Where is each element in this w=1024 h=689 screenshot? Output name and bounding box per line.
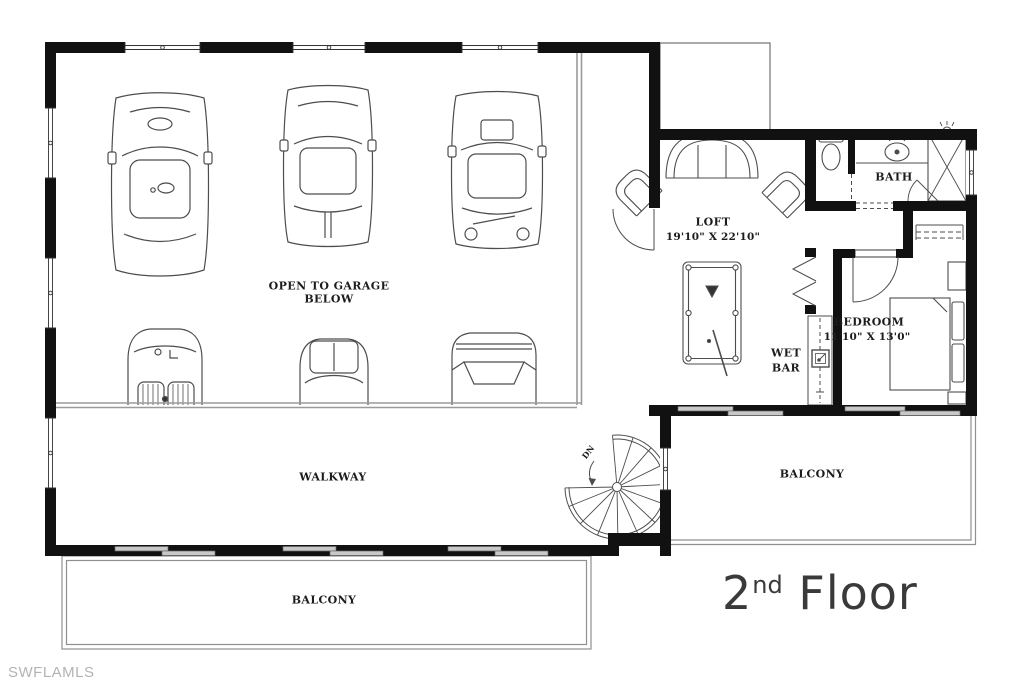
loft-left-wall bbox=[649, 42, 660, 208]
window-top-1 bbox=[125, 42, 200, 53]
open-to-garage-label-line2: BELOW bbox=[304, 293, 353, 306]
garage-cars bbox=[108, 86, 546, 417]
toilet-partition bbox=[848, 129, 855, 174]
stair-bottom-wall bbox=[608, 533, 671, 546]
wet-bar-counter bbox=[808, 316, 832, 405]
closet-bifold-doors bbox=[793, 257, 816, 306]
window-stair-nook bbox=[660, 448, 671, 490]
closet-jamb-bottom bbox=[805, 305, 816, 314]
window-left-2 bbox=[45, 258, 56, 328]
pillow bbox=[952, 344, 964, 382]
bath-bottom-wall-b bbox=[893, 201, 977, 211]
car-top-view-6 bbox=[452, 333, 536, 406]
balcony-south-label: BALCONY bbox=[292, 594, 357, 607]
floor-title-word: Floor bbox=[798, 566, 917, 620]
car-top-view-3 bbox=[448, 92, 546, 249]
window-left-3 bbox=[45, 418, 56, 488]
wet-bar-label-line2: BAR bbox=[772, 362, 800, 375]
window-left-1 bbox=[45, 108, 56, 178]
floor-plan-page: OPEN TO GARAGE BELOW LOFT 19'10" X 22'10… bbox=[0, 0, 1024, 689]
floor-title-number: 2 bbox=[722, 566, 752, 620]
closet-rod-shelf bbox=[916, 225, 963, 240]
car-top-view-2 bbox=[280, 86, 376, 247]
sliding-doors bbox=[115, 407, 960, 556]
dresser bbox=[855, 250, 900, 257]
roof-below-area bbox=[660, 43, 770, 133]
stair-down-arrow bbox=[589, 461, 597, 486]
bedroom-label: BEDROOM bbox=[834, 316, 905, 329]
nightstand-bottom bbox=[948, 392, 966, 404]
pillow bbox=[952, 302, 964, 340]
window-top-3 bbox=[462, 42, 538, 53]
bedroom-top-wall-b bbox=[896, 249, 913, 258]
bath-left-wall bbox=[805, 129, 816, 210]
watermark: SWFLAMLS bbox=[8, 664, 95, 681]
wet-bar-label-line1: WET bbox=[771, 347, 801, 360]
open-to-garage-label-line1: OPEN TO GARAGE bbox=[269, 280, 390, 293]
loft-furniture bbox=[611, 133, 813, 376]
floor-title-ordinal: nd bbox=[752, 571, 782, 599]
bedroom-dimensions: 11'10" X 13'0" bbox=[824, 331, 911, 343]
loft-dimensions: 19'10" X 22'10" bbox=[666, 231, 760, 243]
bath-label: BATH bbox=[875, 171, 912, 184]
floor-title: 2nd Floor bbox=[722, 566, 918, 620]
pool-table bbox=[683, 262, 741, 376]
bed bbox=[890, 298, 964, 390]
window-top-2 bbox=[293, 42, 365, 53]
balcony-east-label: BALCONY bbox=[780, 468, 845, 481]
spiral-staircase bbox=[565, 435, 669, 539]
bedroom-door bbox=[853, 257, 898, 302]
bath-bottom-wall-a bbox=[805, 201, 856, 211]
nightstand-top bbox=[948, 262, 966, 290]
loft-label: LOFT bbox=[696, 216, 731, 229]
car-top-view-5 bbox=[300, 339, 368, 406]
loft-entry-door bbox=[613, 209, 654, 250]
closet-jamb-top bbox=[805, 248, 816, 257]
window-right bbox=[966, 150, 977, 195]
walkway-label: WALKWAY bbox=[299, 471, 366, 484]
bath-opening-dashed bbox=[856, 203, 893, 209]
car-top-view-1 bbox=[108, 93, 212, 276]
